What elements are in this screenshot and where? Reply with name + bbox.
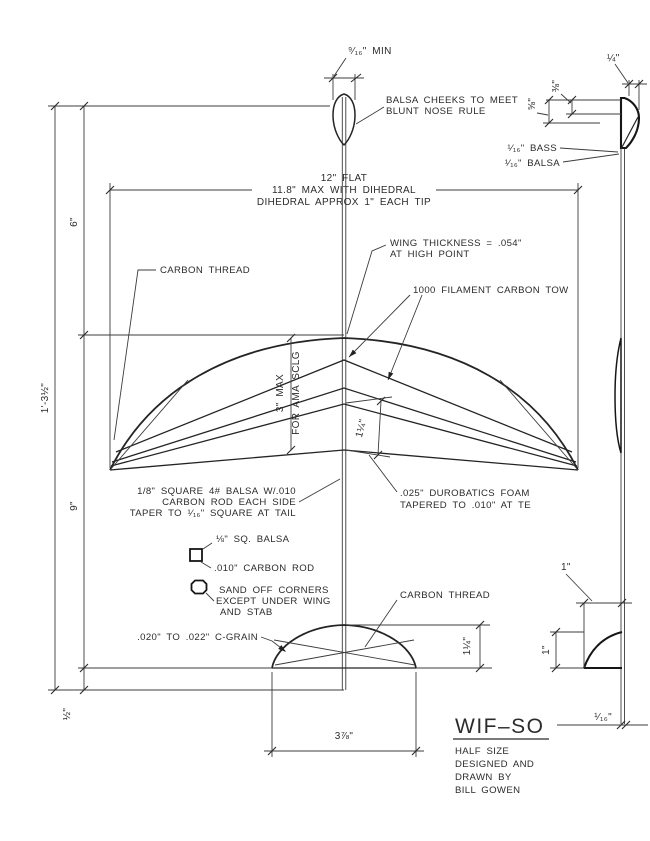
wing-trailing-edge [110, 450, 578, 470]
label-dim-9: 9" [69, 501, 80, 511]
drawing-sheet: ⁹⁄₁₆" MIN BALSA CHEEKS TO MEET BLUNT NOS… [0, 0, 650, 841]
label-side-bass: ¹⁄₁₆" BASS [507, 143, 557, 154]
label-dim-overall: 1'-3½" [40, 383, 51, 413]
label-te-strip: 1¼" [353, 418, 369, 439]
label-stab-material: .020" TO .022" C-GRAIN [137, 632, 258, 643]
title-line-4: BILL GOWEN [455, 785, 520, 796]
label-stab-thread: CARBON THREAD [400, 590, 490, 601]
label-balsa-cheeks-1: BALSA CHEEKS TO MEET [386, 95, 518, 106]
label-span-dihedral: 11.8" MAX WITH DIHEDRAL [272, 185, 416, 196]
label-boom-thickness: ¹⁄₁₆" [594, 712, 612, 723]
label-chord-max-2: FOR AMA SCLG [291, 351, 302, 435]
labels: ⁹⁄₁₆" MIN BALSA CHEEKS TO MEET BLUNT NOS… [40, 46, 620, 742]
label-carbon-thread-wing: CARBON THREAD [160, 265, 250, 276]
stab-thread-braces [274, 640, 415, 665]
side-nose-pod [621, 98, 639, 148]
label-wing-thickness-1: WING THICKNESS = .054" [390, 238, 522, 249]
balsa-cheeks-leader [356, 107, 384, 124]
side-nose-stack-dims [537, 94, 621, 123]
title-line-1: HALF SIZE [455, 746, 509, 757]
label-side-balsa: ¹⁄₁₆" BALSA [505, 158, 561, 169]
label-wing-thickness-2: AT HIGH POINT [390, 249, 470, 260]
nose-pod [333, 94, 355, 145]
label-sq-balsa: ⅛" SQ. BALSA [216, 534, 290, 545]
sand-note-leader [206, 593, 214, 601]
label-side-stab-height: 1" [541, 645, 552, 655]
wif-so-plan-drawing: ⁹⁄₁₆" MIN BALSA CHEEKS TO MEET BLUNT NOS… [0, 0, 650, 841]
carbon-rod-leader [201, 562, 211, 568]
label-dim-6: 6" [69, 217, 80, 227]
label-side-nose-38: ⅜" [551, 80, 562, 93]
side-view [584, 98, 639, 724]
sq-balsa-leader [203, 543, 212, 549]
label-carbon-tow: 1000 FILAMENT CARBON TOW [413, 285, 569, 296]
label-nose-min: ⁹⁄₁₆" MIN [348, 46, 392, 57]
label-chord-max-1: 3" MAX [275, 374, 286, 412]
side-stab-section [584, 632, 622, 668]
boom-note-leader [299, 479, 340, 502]
label-side-nose-width: ¼" [607, 52, 620, 64]
wing-thickness-leader [347, 245, 386, 334]
label-side-stab-chord: 1" [561, 562, 571, 573]
stab-thread-leader [365, 600, 397, 647]
label-boom-note-3: TAPER TO ¹⁄₁₆" SQUARE AT TAIL [130, 508, 297, 519]
side-balsa-leader [563, 154, 619, 162]
label-sand-note-1: SAND OFF CORNERS [219, 585, 329, 596]
foam-note-leader [369, 455, 397, 492]
stab-span-dim [264, 672, 424, 757]
side-bass-leader [560, 148, 618, 152]
label-foam-note-1: .025" DUROBATICS FOAM [400, 488, 530, 499]
span-dim [110, 183, 578, 468]
label-sand-note-3: AND STAB [220, 607, 273, 618]
label-stab-span: 3⅞" [335, 731, 354, 742]
drawing-title: WIF–SO [455, 715, 545, 738]
side-stab-height-dim [550, 632, 584, 668]
square-boom-section-symbol [190, 549, 202, 561]
label-carbon-rod: .010" CARBON ROD [214, 563, 314, 574]
label-dim-half: ½" [62, 708, 73, 721]
label-boom-note-1: 1/8" SQUARE 4# BALSA W/.010 [137, 486, 296, 497]
carbon-tow-leaders [349, 295, 422, 380]
label-side-nose-58: ⅝" [527, 98, 538, 111]
label-foam-note-2: TAPERED TO .010" AT TE [400, 500, 531, 511]
wing-spar-line-3 [111, 404, 577, 466]
title-line-3: DRAWN BY [455, 772, 512, 783]
label-span-dihedral-tip: DIHEDRAL APPROX 1" EACH TIP [257, 197, 431, 208]
label-stab-chord: 1¼" [461, 637, 473, 656]
label-boom-note-2: CARBON ROD EACH SIDE [162, 497, 296, 508]
title-line-2: DESIGNED AND [455, 759, 534, 770]
side-wing-section [615, 338, 621, 453]
wing-tip-braces [110, 380, 578, 470]
label-span-flat: 12" FLAT [321, 173, 367, 184]
label-sand-note-2: EXCEPT UNDER WING [216, 596, 331, 607]
title-block: WIF–SO HALF SIZE DESIGNED AND DRAWN BY B… [453, 715, 549, 796]
octagon-sanded-section-symbol [192, 581, 207, 594]
label-balsa-cheeks-2: BLUNT NOSE RULE [386, 106, 486, 117]
side-stab-chord-leader [566, 574, 592, 601]
wing-spar-line-1 [116, 360, 572, 452]
